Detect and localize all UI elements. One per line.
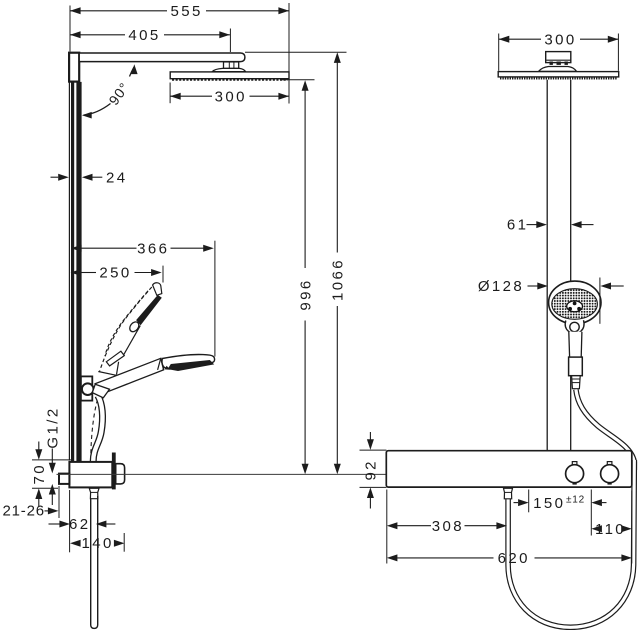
svg-text:150: 150 (533, 495, 565, 512)
svg-text:308: 308 (432, 518, 464, 535)
svg-text:21-26: 21-26 (3, 503, 45, 520)
svg-text:Ø128: Ø128 (478, 278, 524, 295)
svg-text:110: 110 (595, 521, 626, 538)
svg-text:G1/2: G1/2 (45, 406, 62, 448)
svg-text:24: 24 (106, 169, 128, 186)
svg-text:300: 300 (544, 31, 576, 48)
svg-text:140: 140 (81, 535, 113, 552)
svg-text:300: 300 (215, 88, 247, 105)
svg-text:1066: 1066 (330, 258, 347, 301)
svg-text:366: 366 (137, 240, 169, 257)
svg-text:92: 92 (363, 459, 380, 481)
svg-text:555: 555 (170, 3, 202, 20)
svg-text:±12: ±12 (566, 495, 585, 506)
svg-text:996: 996 (297, 278, 314, 310)
svg-text:62: 62 (69, 516, 91, 533)
svg-text:620: 620 (498, 550, 530, 567)
svg-text:61: 61 (507, 217, 529, 234)
svg-text:405: 405 (128, 27, 160, 44)
svg-text:250: 250 (99, 265, 131, 282)
svg-text:70: 70 (31, 463, 48, 485)
